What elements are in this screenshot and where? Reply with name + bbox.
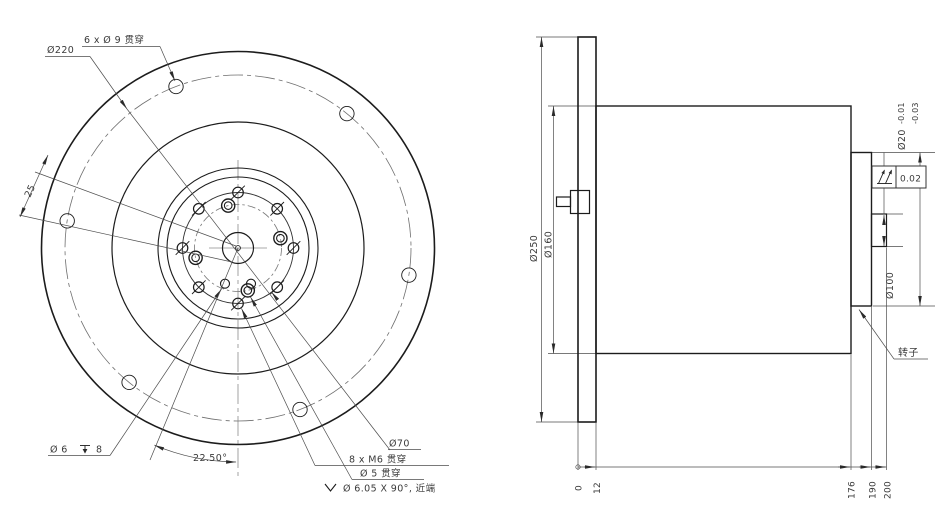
ordinate-0: 0 xyxy=(575,485,585,491)
dim-d250: Ø250 xyxy=(529,37,542,422)
flange-plate xyxy=(578,37,596,422)
ordinate-176: 176 xyxy=(848,481,858,499)
connector-block xyxy=(571,191,590,214)
ordinate-dimensions: 0 12 176 190 200 xyxy=(575,248,894,500)
runout-frame: 0.02 xyxy=(872,166,926,188)
runout-value: 0.02 xyxy=(900,175,921,185)
rotor-label-group: 转子 xyxy=(859,310,928,360)
dim-d70-text: Ø70 xyxy=(389,439,410,450)
countersink-text: Ø 6.05 X 90°, 近端 xyxy=(343,483,436,495)
note-8x-m6-text: 8 x M6 贯穿 xyxy=(349,454,407,466)
ordinate-190: 190 xyxy=(869,481,879,499)
engineering-drawing-canvas: 6 x Ø 9 贯穿 Ø220 25 Ø 6 xyxy=(0,0,942,525)
motor-body xyxy=(596,106,851,354)
rotor-label: 转子 xyxy=(898,346,919,359)
dim-d20-tol-upper: -0.01 xyxy=(897,102,906,124)
note-d5-through: Ø 5 贯穿 xyxy=(251,297,425,480)
countersink-icon xyxy=(325,484,336,491)
ordinate-200: 200 xyxy=(884,481,894,499)
note-d5-text: Ø 5 贯穿 xyxy=(360,468,401,480)
dim-d6-depth8: Ø 6 8 xyxy=(48,289,222,456)
dim-d70: Ø70 xyxy=(388,439,421,450)
dim-d160: Ø160 xyxy=(544,106,555,354)
dim-d6-depth-value: 8 xyxy=(96,445,102,456)
rotor-section xyxy=(851,153,872,307)
ordinate-12: 12 xyxy=(593,482,603,494)
radial-construction-line xyxy=(127,109,390,450)
dim-d220: Ø220 xyxy=(45,45,127,109)
dim-angle-22-5: 22.50° xyxy=(150,248,238,464)
dim-angle-text: 22.50° xyxy=(193,453,227,464)
dim-d160-text: Ø160 xyxy=(544,231,555,258)
countersink-note: Ø 6.05 X 90°, 近端 xyxy=(325,483,436,495)
front-view: 6 x Ø 9 贯穿 Ø220 25 Ø 6 xyxy=(19,34,449,495)
note-6x-d9-through: 6 x Ø 9 贯穿 xyxy=(82,34,175,81)
dim-d20-text: Ø20 xyxy=(897,129,908,150)
depth-icon xyxy=(80,446,90,454)
engineering-drawing: 6 x Ø 9 贯穿 Ø220 25 Ø 6 xyxy=(0,0,942,525)
connector-nub xyxy=(557,197,571,207)
note-6x-d9-text: 6 x Ø 9 贯穿 xyxy=(84,34,144,46)
dim-25-text: 25 xyxy=(23,183,38,199)
dim-d6-prefix: Ø 6 xyxy=(50,445,68,456)
dim-d250-text: Ø250 xyxy=(529,235,540,262)
dim-d20-tol-lower: -0.03 xyxy=(911,102,920,124)
dim-d220-text: Ø220 xyxy=(47,45,74,56)
side-view: Ø250 Ø160 Ø20 -0.01 -0.03 Ø100 xyxy=(529,37,935,499)
